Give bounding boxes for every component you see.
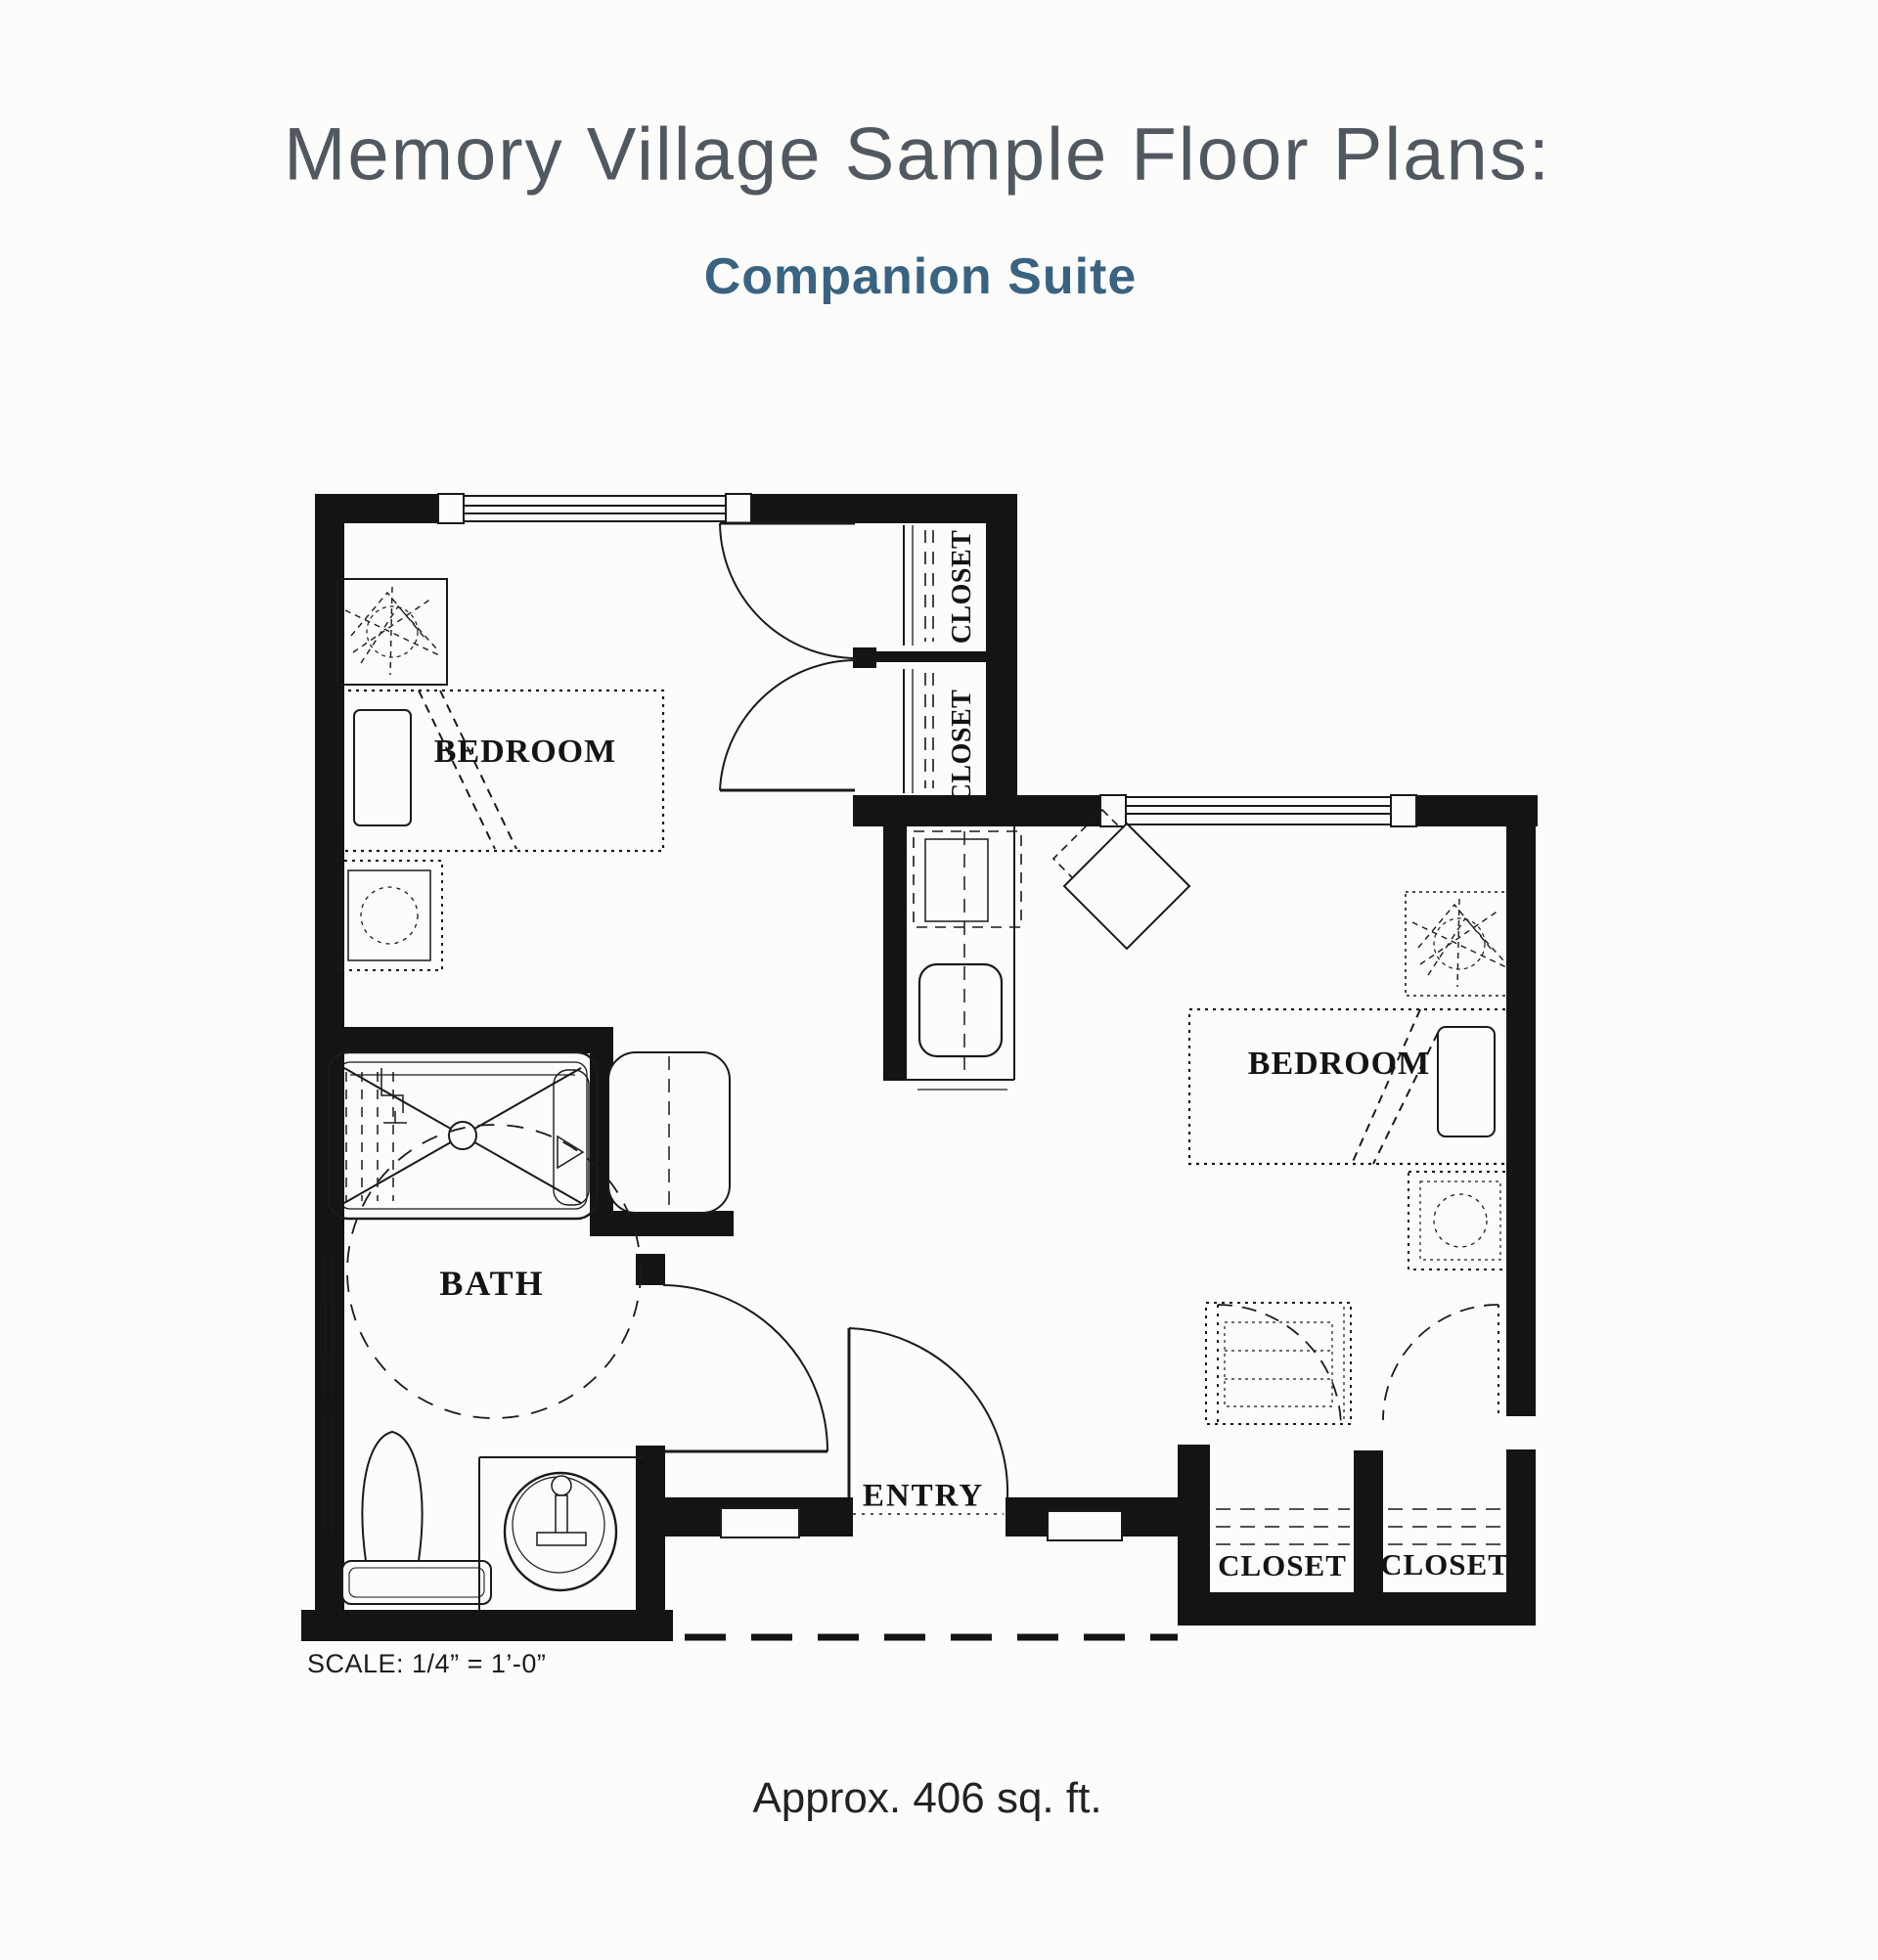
entry-label: ENTRY [863,1479,984,1515]
floor-plan-drawing [0,0,1878,1960]
bedroom-2-bed [1189,1009,1508,1164]
area-note: Approx. 406 sq. ft. [752,1774,1101,1823]
bedroom-2-plant [1406,892,1513,996]
closet-bottom-right-label: CLOSET [1380,1547,1509,1582]
bedroom-1-label: BEDROOM [434,734,616,771]
toilet [342,1432,491,1604]
scale-note: SCALE: 1/4” = 1’-0” [307,1649,546,1679]
armchair [1053,810,1189,949]
bedroom-1-nightstand [336,861,442,970]
kitchenette-counter [907,826,1021,1090]
closet-bottom-left-label: CLOSET [1218,1548,1347,1583]
bedroom-2-nightstand [1408,1172,1512,1270]
closet-top-lower-label: CLOSET [947,690,978,804]
bedroom-1-bed [340,690,663,851]
floor-plan-page: Memory Village Sample Floor Plans: Compa… [0,0,1878,1960]
closet-top-upper-label: CLOSET [947,530,978,645]
top-closet-doors [720,523,857,790]
window-bedroom-1 [438,494,751,523]
bedroom-2-label: BEDROOM [1248,1046,1430,1083]
bedroom-1-plant [337,579,447,685]
bath-door-alcove [608,1052,730,1213]
window-bedroom-2 [1100,795,1416,826]
bath-sink [479,1457,644,1610]
bath-label: BATH [439,1263,544,1304]
bath-door [663,1285,827,1451]
